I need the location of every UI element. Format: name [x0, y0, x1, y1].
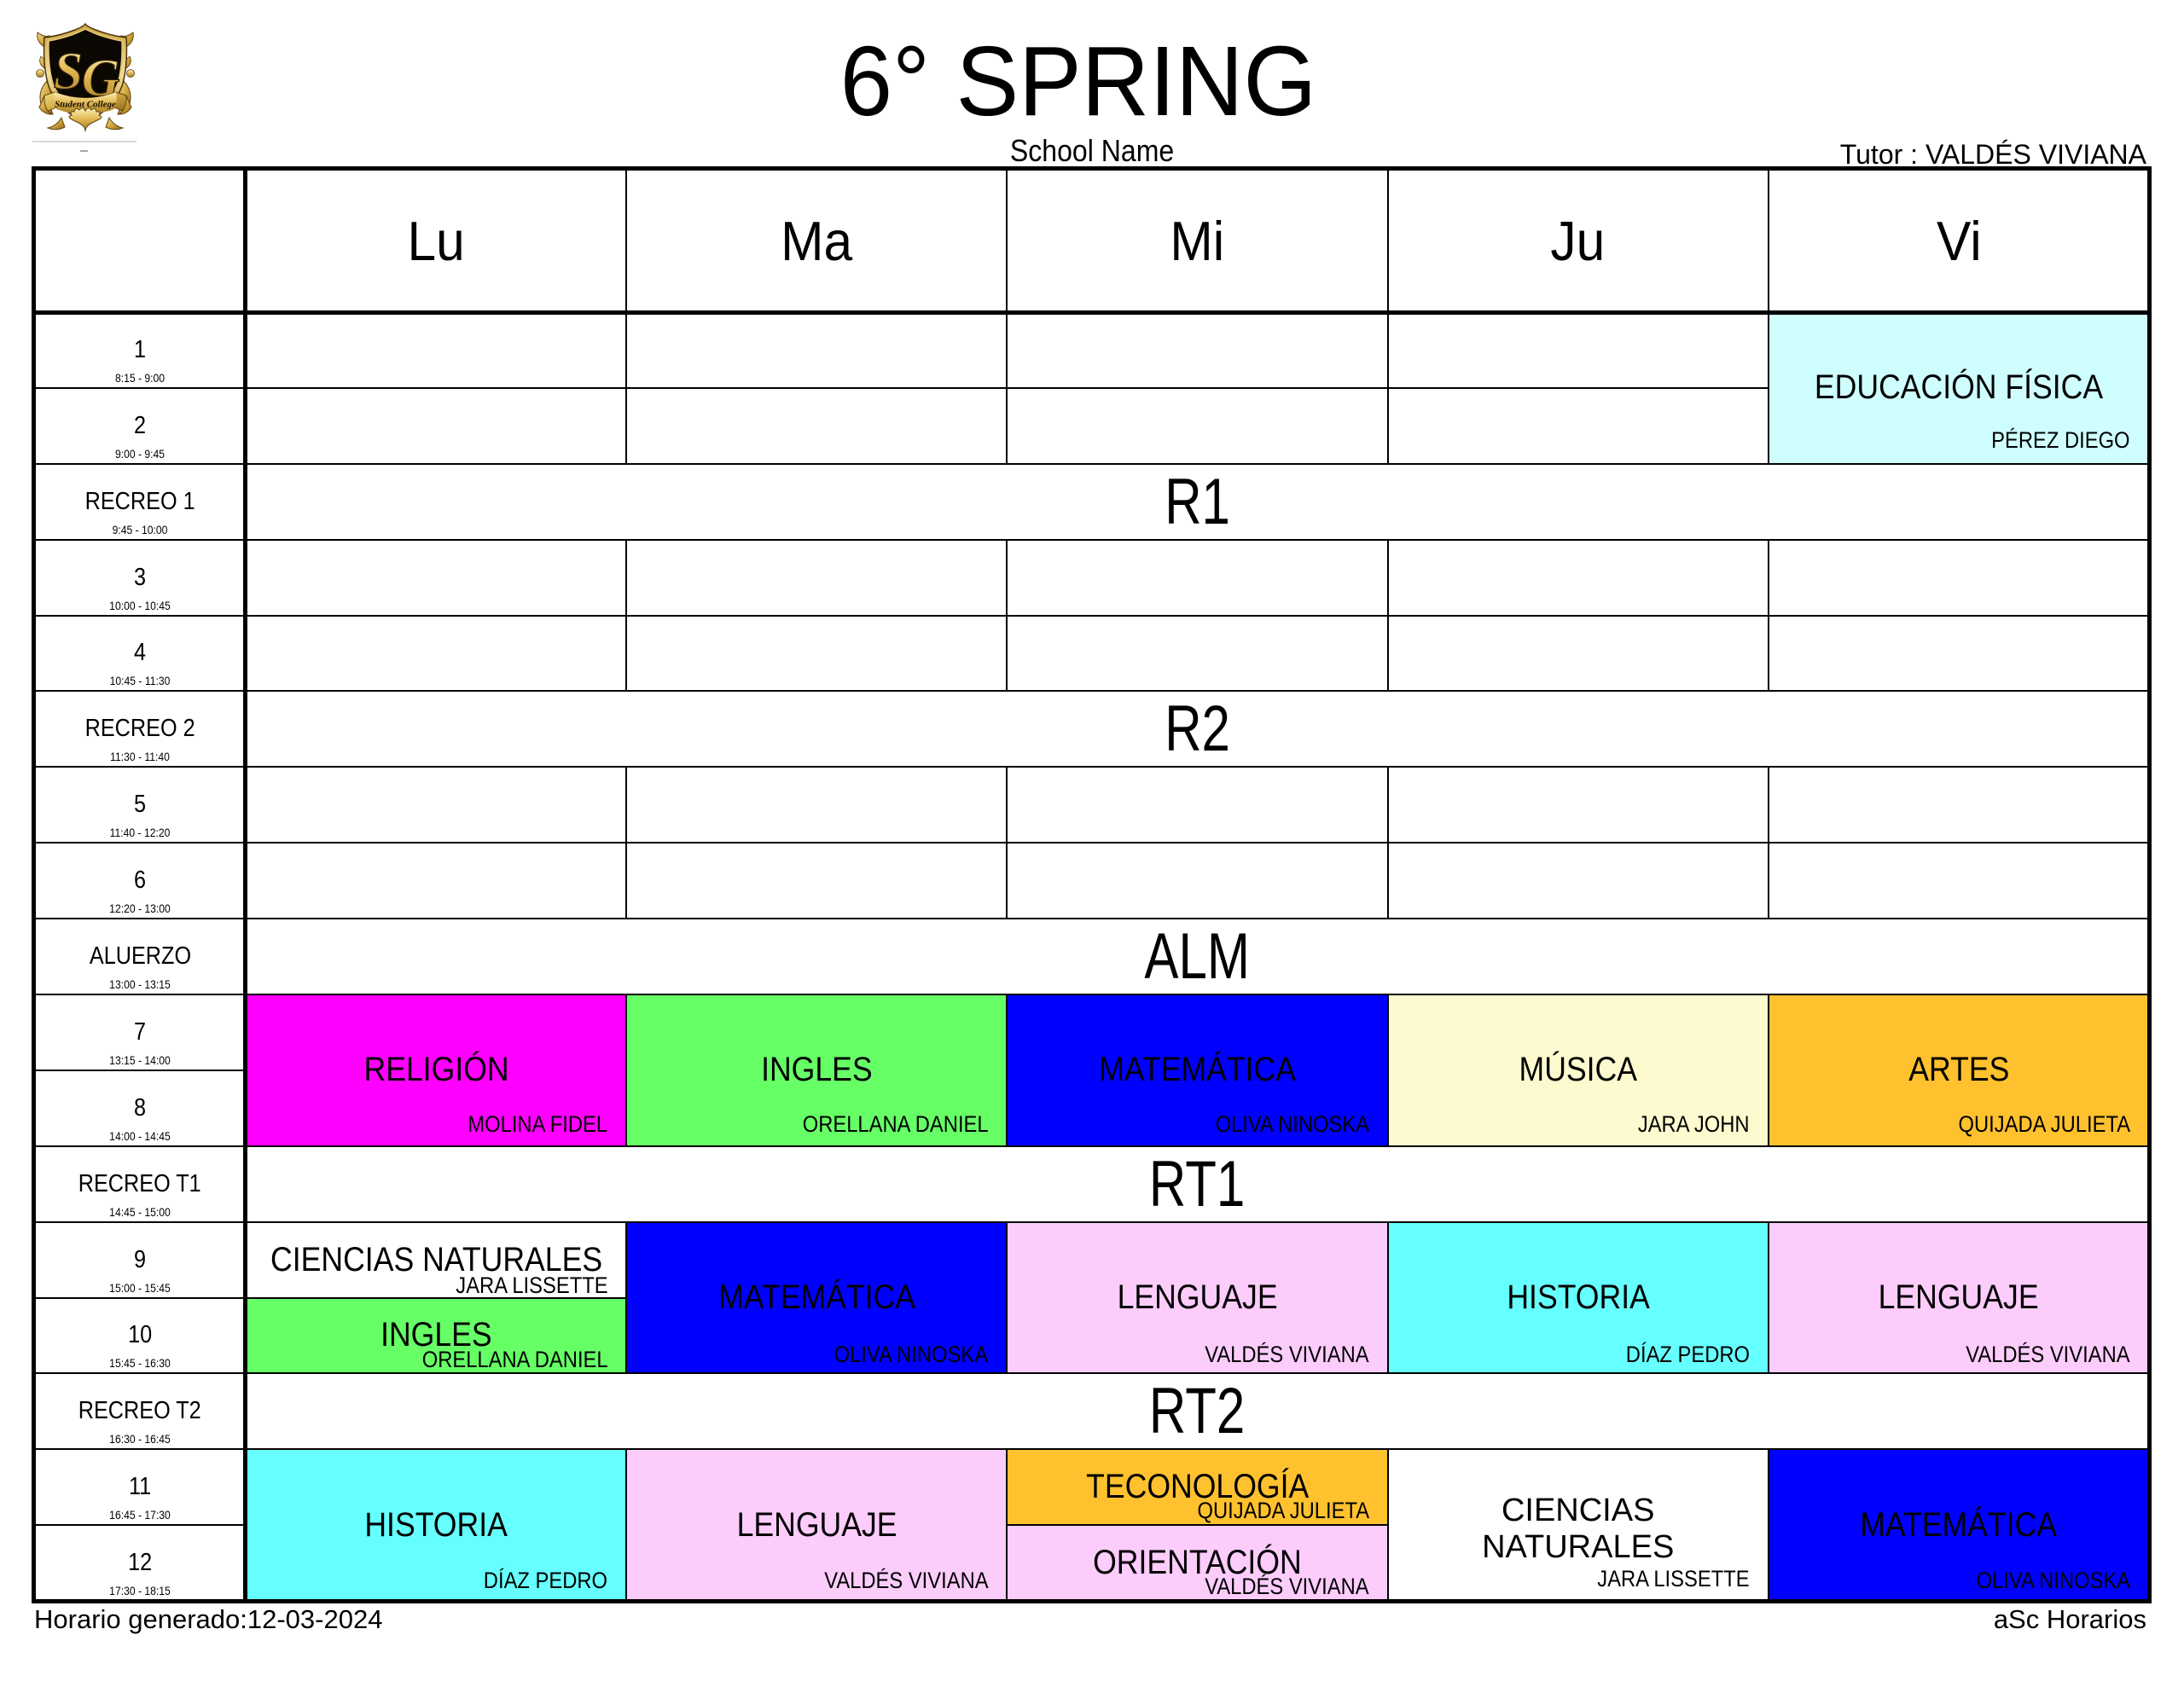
svg-text:S: S — [54, 43, 83, 101]
svg-text:Student College: Student College — [55, 100, 116, 110]
